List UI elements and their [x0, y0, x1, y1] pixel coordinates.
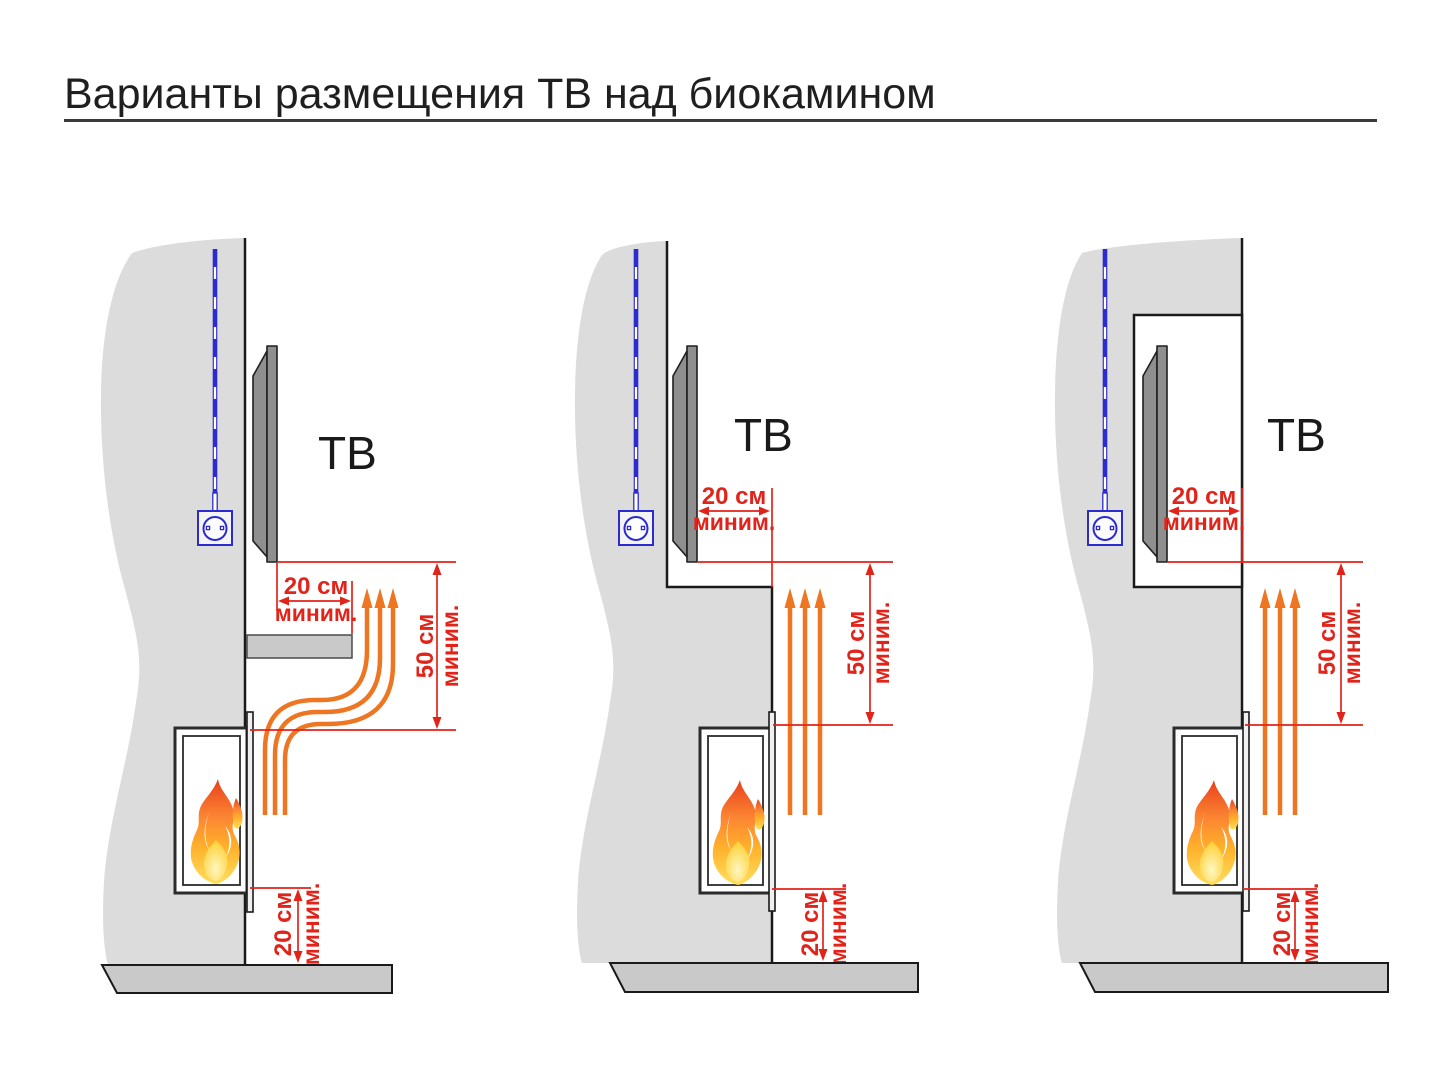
- heat-flow-arrows: [1260, 588, 1301, 815]
- socket-icon: [198, 511, 232, 545]
- dimension-qualifier: миним.: [298, 883, 324, 966]
- dimension-qualifier: миним.: [1297, 883, 1323, 966]
- dimension-value: 20 см: [270, 892, 297, 956]
- heat-arrow-head: [375, 588, 386, 608]
- dimension-value: 20 см: [1269, 892, 1296, 956]
- cable-connector: [1103, 493, 1107, 511]
- fireplace-glass-front: [1243, 712, 1249, 911]
- cable-connector: [634, 493, 638, 511]
- dimension-value: 20 см: [1172, 483, 1236, 510]
- fireplace: [700, 712, 775, 911]
- dimension-qualifier: миним.: [868, 602, 894, 685]
- heat-flow-arrows: [785, 588, 826, 815]
- protective-shelf: [247, 635, 352, 658]
- dimension-value: 50 см: [412, 614, 439, 678]
- heat-arrow-head: [1275, 588, 1286, 608]
- dimension-qualifier: миним.: [1163, 509, 1246, 535]
- socket-icon: [619, 511, 653, 545]
- dimension-side-clearance: 20 см миним.: [275, 563, 358, 634]
- fireplace-glass-front: [769, 712, 775, 911]
- tv-label: ТВ: [1267, 409, 1326, 461]
- variant-tv-in-niche: ТВ 20 см миним.: [1055, 238, 1388, 992]
- tv-label: ТВ: [318, 427, 377, 479]
- dimension-floor-clearance: 20 см миним.: [772, 883, 851, 966]
- heat-arrow-head: [1290, 588, 1301, 608]
- dimension-qualifier: миним.: [825, 883, 851, 966]
- heat-arrow-head: [800, 588, 811, 608]
- dimension-floor-clearance: 20 см миним.: [1243, 883, 1323, 966]
- variant-tv-on-recessed-wall: ТВ 20 см миним.: [575, 241, 918, 992]
- dimension-value: 20 см: [284, 573, 348, 600]
- heat-arrow-head: [1260, 588, 1271, 608]
- heat-arrow-head: [388, 588, 399, 608]
- cable-connector: [213, 493, 217, 511]
- diagram-canvas: ТВ 20 см миним.: [0, 0, 1440, 1080]
- dimension-qualifier: миним.: [693, 509, 776, 535]
- fireplace-glass-front: [247, 712, 253, 912]
- tv-side-view: [253, 346, 277, 562]
- dimension-value: 50 см: [843, 611, 870, 675]
- dimension-value: 50 см: [1314, 611, 1341, 675]
- dimension-qualifier: миним.: [1339, 602, 1365, 685]
- tv-label: ТВ: [734, 409, 793, 461]
- floor: [610, 963, 918, 992]
- dimension-value: 20 см: [797, 892, 824, 956]
- dimension-qualifier: миним.: [275, 600, 358, 626]
- floor: [1080, 963, 1388, 992]
- socket-icon: [1088, 511, 1122, 545]
- dimension-side-clearance: 20 см миним.: [693, 483, 776, 587]
- dimension-value: 20 см: [702, 483, 766, 510]
- fireplace: [175, 712, 253, 912]
- fireplace: [1174, 712, 1249, 911]
- dimension-floor-clearance: 20 см миним.: [250, 883, 324, 966]
- heat-arrow-head: [815, 588, 826, 608]
- heat-arrow-head: [362, 588, 373, 608]
- dimension-qualifier: миним.: [437, 605, 463, 688]
- variant-tv-above-shelf: ТВ 20 см миним.: [101, 238, 463, 993]
- heat-arrow-head: [785, 588, 796, 608]
- floor: [102, 965, 392, 993]
